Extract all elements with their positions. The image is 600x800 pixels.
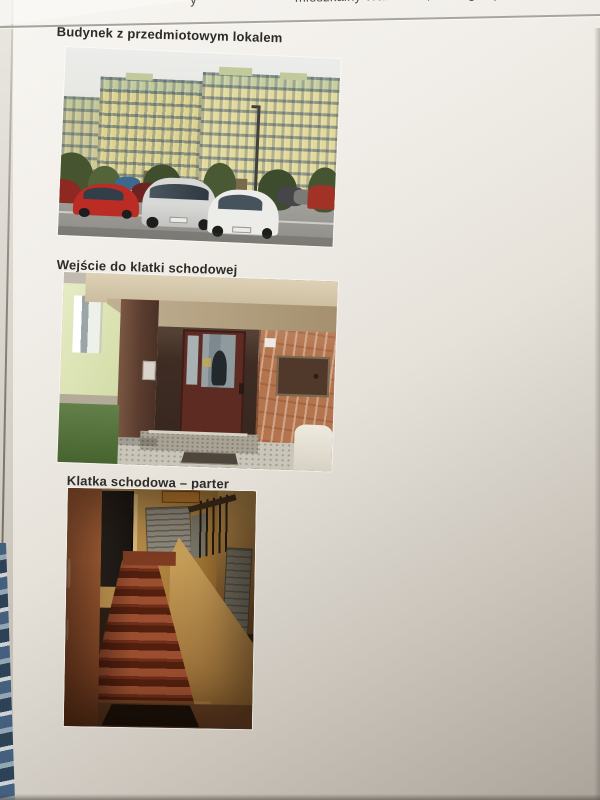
pillar-shadow <box>118 437 157 446</box>
reflection-figure <box>211 350 227 385</box>
page-header: y mieszkalny Warszawa, ul. Zagłoby 5/52 <box>190 0 530 7</box>
roof-step <box>279 72 307 80</box>
side-window <box>72 295 103 353</box>
license-plate <box>169 217 187 224</box>
photographed-document-page: y mieszkalny Warszawa, ul. Zagłoby 5/52 … <box>0 0 600 800</box>
car-red-right <box>307 185 338 211</box>
grass-patch <box>57 403 119 464</box>
van-windshield <box>149 183 209 200</box>
license-plate <box>232 226 251 233</box>
minivan-silver <box>141 176 217 228</box>
photo-vignette <box>64 488 256 729</box>
figure-caption-building: Budynek z przedmiotowym lokalem <box>57 24 283 45</box>
wall-intercom <box>264 338 275 348</box>
reflection-glint <box>203 358 211 368</box>
header-text-fragment: mieszkalny Warszawa, ul. Zagłoby 5/52 <box>295 0 530 5</box>
door-glass-left-pane <box>186 335 199 385</box>
photo-staircase-entrance <box>57 272 337 471</box>
bottom-shadow <box>0 794 600 800</box>
doormat <box>181 451 239 465</box>
van-wheel <box>147 217 159 228</box>
door-glass-main-pane <box>201 334 236 388</box>
street-lamp-head <box>252 105 261 108</box>
utility-box-knob <box>313 374 318 379</box>
roof-step <box>219 67 252 76</box>
metal-utility-box <box>276 356 329 398</box>
header-text-fragment-prefix: y <box>190 0 197 7</box>
door-handle <box>239 383 244 395</box>
photo-staircase-interior <box>64 488 256 729</box>
photo-apartment-building <box>58 47 341 247</box>
pillar-intercom-panel <box>142 360 155 379</box>
roof-step <box>125 72 153 81</box>
white-post <box>293 425 333 472</box>
car-windshield <box>84 186 124 200</box>
car-white <box>206 189 279 237</box>
right-edge-shadow <box>594 28 600 800</box>
car-windshield <box>218 194 263 211</box>
